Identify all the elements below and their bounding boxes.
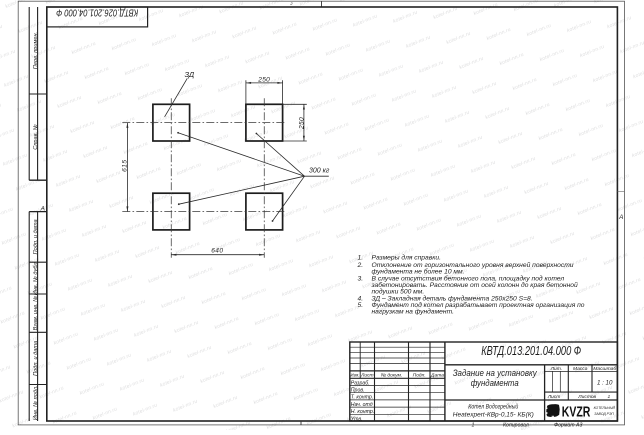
svg-text:2.: 2. [357,262,364,269]
svg-text:3.: 3. [358,276,364,283]
svg-text:Дата: Дата [430,373,444,379]
svg-text:Листов: Листов [577,394,596,400]
svg-text:КВТД.026.201.04.000 Ф: КВТД.026.201.04.000 Ф [56,6,138,17]
svg-text:Котел Водогрейный: Котел Водогрейный [468,402,518,410]
svg-text:Н. контр.: Н. контр. [351,409,374,415]
svg-text:5.: 5. [358,302,364,309]
svg-text:Задание на установку: Задание на установку [453,368,538,379]
svg-text:Справ. №: Справ. № [33,124,39,149]
svg-text:Разраб.: Разраб. [351,380,370,386]
svg-text:Подп. и дата: Подп. и дата [33,219,39,254]
svg-text:Лист: Лист [547,394,561,400]
svg-text:250: 250 [257,76,270,83]
svg-text:нагрузкам на фундамент.: нагрузкам на фундамент. [372,308,455,316]
svg-text:Взам. инв. №: Взам. инв. № [33,296,39,331]
svg-text:1.: 1. [358,255,364,262]
svg-text:Лит.: Лит. [550,366,562,372]
svg-text:1: 1 [608,394,611,400]
svg-text:подушки 500 мм.: подушки 500 мм. [372,287,425,295]
svg-text:Утв.: Утв. [351,416,363,422]
svg-text:Инв. № дубл.: Инв. № дубл. [33,261,39,295]
svg-text:Изм.: Изм. [351,373,360,379]
svg-text:Масса: Масса [573,366,588,372]
svg-text:1 : 10: 1 : 10 [597,379,613,386]
svg-text:Пров.: Пров. [351,388,365,394]
svg-text:Копировал: Копировал [503,423,529,429]
svg-text:Heatexpert-КВр-0,15- КБ(К): Heatexpert-КВр-0,15- КБ(К) [453,412,534,419]
svg-text:КВТД.013.201.04.000 Ф: КВТД.013.201.04.000 Ф [481,344,581,358]
svg-text:Нач. отд: Нач. отд [351,402,373,408]
svg-text:Т. контр.: Т. контр. [351,395,373,401]
svg-text:Лист: Лист [360,373,374,379]
svg-text:250: 250 [298,117,305,130]
svg-text:ЗД: ЗД [184,70,194,79]
svg-text:640: 640 [211,248,223,255]
svg-text:Размеры для справки.: Размеры для справки. [372,254,442,262]
svg-text:Перв. примен.: Перв. примен. [33,32,39,69]
svg-text:№ докум.: № докум. [381,373,403,379]
svg-text:Подп. и дата: Подп. и дата [33,341,39,376]
svg-text:615: 615 [121,160,128,172]
svg-text:Масштаб: Масштаб [593,366,616,372]
svg-text:Инв. № подл.: Инв. № подл. [33,385,39,420]
svg-text:КОТЕЛЬНЫЙ: КОТЕЛЬНЫЙ [594,406,616,410]
svg-text:KVZR: KVZR [562,404,591,421]
svg-text:Подп.: Подп. [413,373,426,379]
svg-text:1: 1 [472,423,475,429]
svg-text:Формат А3: Формат А3 [554,423,582,429]
svg-text:ЗАВОД РЭП: ЗАВОД РЭП [594,412,614,416]
svg-text:А: А [618,214,623,221]
svg-text:300 кг: 300 кг [309,167,330,174]
svg-text:фундамента: фундамента [471,378,519,389]
svg-text:фундамента не более 10 мм.: фундамента не более 10 мм. [372,267,465,275]
